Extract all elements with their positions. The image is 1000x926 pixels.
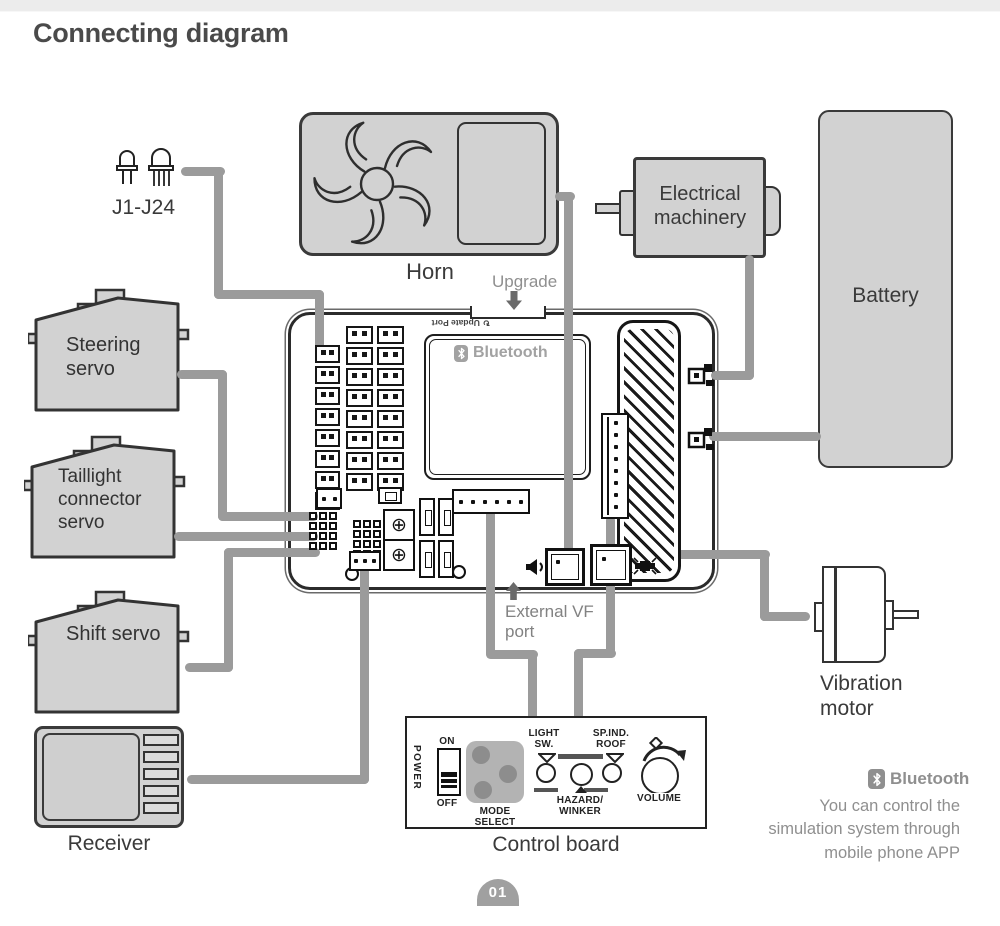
receiver-port [143, 785, 179, 797]
power-on-label: ON [433, 736, 461, 747]
board-8pin-connector [601, 413, 629, 519]
machinery-shaft [595, 203, 622, 214]
board-socket [346, 431, 373, 449]
led-wire [214, 290, 324, 299]
machinery-wire [745, 255, 754, 380]
board-socket [346, 389, 373, 407]
hazard-winker-label: HAZARD/ WINKER [548, 795, 612, 817]
screw-terminal: ⊕ ⊕ [383, 509, 415, 571]
vf-port-wire-right [574, 649, 583, 723]
mode-select-button[interactable] [499, 765, 517, 783]
shift-servo-label: Shift servo [66, 622, 166, 646]
taillight-servo-wire [174, 532, 318, 541]
vf-port-arrow-icon [506, 582, 521, 600]
horn-output-connector [545, 548, 585, 586]
volume-knob[interactable] [641, 757, 679, 795]
board-socket [377, 368, 404, 386]
board-socket [377, 347, 404, 365]
shift-servo-wire [224, 548, 233, 672]
board-socket [346, 326, 373, 344]
board-pin-grid [309, 512, 337, 550]
page-top-strip [0, 0, 1000, 12]
steering-servo-wire [218, 512, 318, 521]
horn-wire [564, 192, 573, 556]
board-screw-hole [452, 565, 466, 579]
board-socket [377, 389, 404, 407]
control-board-label: Control board [478, 833, 634, 858]
vibration-motor-icon [633, 556, 657, 576]
receiver-port [143, 734, 179, 746]
receiver-port [143, 768, 179, 780]
board-socket [346, 452, 373, 470]
volume-label: VOLUME [630, 793, 688, 804]
sp-ind-roof-label: SP.IND. ROOF [583, 728, 639, 750]
mode-select-label: MODE SELECT [459, 806, 531, 828]
vibration-motor-shaft [892, 610, 919, 619]
board-socket [315, 429, 340, 447]
vf-port-connector [452, 489, 530, 514]
shift-servo-wire [224, 548, 320, 557]
steering-servo-wire [218, 370, 227, 521]
power-label: POWER [411, 745, 422, 801]
vf-port-label: External VF port [505, 602, 600, 642]
speaker-icon [524, 556, 544, 578]
horn-fan-icon [308, 116, 444, 252]
board-socket [377, 326, 404, 344]
receiver-label: Receiver [34, 832, 184, 857]
bluetooth-note-text: You can control the simulation system th… [741, 795, 960, 865]
update-port-label: ↻ Update Port [420, 317, 490, 329]
receiver-connector [349, 551, 381, 571]
board-connector-block [419, 540, 435, 578]
page: Connecting diagram J1-J24 [0, 0, 1000, 926]
board-socket [315, 408, 340, 426]
vibration-motor-wire [760, 550, 769, 621]
machinery-wire [711, 371, 754, 380]
mode-select-button[interactable] [472, 746, 490, 764]
board-socket [377, 431, 404, 449]
board-socket [315, 450, 340, 468]
receiver-port [143, 802, 179, 814]
vf-port-wire-left [486, 505, 495, 658]
led-wire [214, 167, 223, 299]
hazard-pointer-icon [575, 786, 587, 793]
vibration-motor-body [822, 566, 886, 663]
motor-output-connector [590, 544, 632, 586]
vibration-motor-wire [760, 612, 810, 621]
light-sw-label: LIGHT SW. [521, 728, 567, 750]
leds-label: J1-J24 [112, 196, 175, 221]
vf-port-wire-right [606, 516, 615, 658]
taillight-servo-label: Taillight connector servo [58, 466, 183, 534]
steering-servo-label: Steering servo [66, 333, 176, 381]
board-socket [346, 368, 373, 386]
upgrade-label: Upgrade [492, 272, 557, 292]
machinery-plug-icon [686, 361, 716, 389]
panel-bar [558, 754, 603, 759]
power-switch[interactable] [437, 748, 461, 796]
update-port-icon: ↻ [483, 318, 490, 329]
vf-port-wire-left [528, 650, 537, 723]
machinery-label: Electrical machinery [645, 183, 755, 230]
bluetooth-module-logo: Bluetooth [454, 344, 548, 362]
board-socket [315, 366, 340, 384]
panel-bar [584, 788, 608, 792]
board-socket [315, 471, 340, 489]
bluetooth-icon [454, 345, 468, 362]
board-socket [346, 347, 373, 365]
bluetooth-note-logo: Bluetooth [868, 769, 969, 789]
vibration-motor-label: Vibration motor [820, 672, 955, 722]
receiver-ports [143, 734, 179, 819]
shift-servo-icon [28, 590, 190, 725]
page-number-badge: 01 [477, 879, 519, 906]
board-socket [377, 410, 404, 428]
battery-label: Battery [818, 284, 953, 309]
board-socket [346, 410, 373, 428]
light-sw-knob[interactable] [536, 763, 556, 783]
board-fuse [378, 487, 402, 504]
upgrade-arrow-icon [506, 291, 522, 310]
battery-wire [709, 432, 821, 441]
page-title: Connecting diagram [33, 18, 289, 49]
receiver-port [143, 751, 179, 763]
vibration-motor-seam [834, 568, 837, 661]
battery-plug-icon [686, 425, 716, 453]
light-sw-toggle-icon[interactable] [538, 753, 556, 763]
receiver-wire [360, 558, 369, 784]
board-2pin-socket [316, 488, 342, 509]
receiver-wire [187, 775, 369, 784]
mode-select-button[interactable] [474, 781, 492, 799]
bluetooth-icon [868, 769, 885, 789]
led-wire [315, 290, 324, 352]
horn-label: Horn [360, 259, 500, 285]
board-socket-column [377, 326, 404, 494]
board-connector-block [419, 498, 435, 536]
sp-ind-toggle-icon[interactable] [606, 753, 624, 763]
receiver-body [42, 733, 140, 821]
led-icons [110, 146, 182, 194]
board-socket-column [346, 326, 373, 494]
machinery-end-cap [764, 186, 781, 236]
horn-speaker-panel [457, 122, 546, 245]
board-socket [377, 452, 404, 470]
board-socket [346, 473, 373, 491]
sp-ind-knob[interactable] [602, 763, 622, 783]
panel-bar [534, 788, 558, 792]
board-socket [315, 345, 340, 363]
board-socket [315, 387, 340, 405]
hazard-winker-knob[interactable] [570, 763, 593, 786]
